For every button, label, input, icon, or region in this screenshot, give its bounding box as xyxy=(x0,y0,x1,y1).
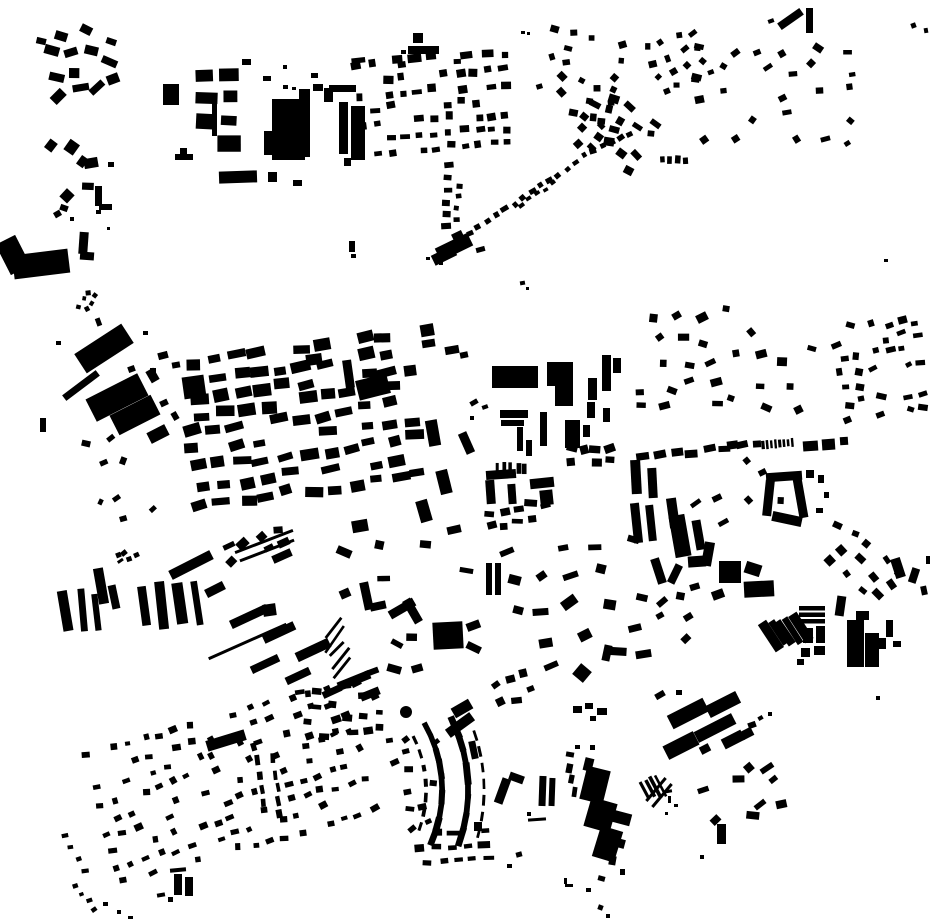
building-footprint xyxy=(778,94,788,103)
building-footprint xyxy=(210,455,225,468)
building-footprint xyxy=(590,745,595,750)
building-footprint xyxy=(270,753,275,763)
building-footprint xyxy=(691,519,705,550)
building-footprint xyxy=(264,131,274,155)
building-footprint xyxy=(424,793,428,803)
building-footprint xyxy=(610,73,620,83)
building-footprint xyxy=(174,874,182,895)
building-footprint xyxy=(340,764,348,770)
building-footprint xyxy=(59,188,74,203)
building-footprint xyxy=(108,584,121,609)
building-footprint xyxy=(235,385,253,398)
building-footprint xyxy=(95,317,102,326)
building-footprint xyxy=(650,557,667,585)
building-footprint xyxy=(446,111,453,119)
building-footprint xyxy=(731,134,741,144)
building-footprint xyxy=(63,139,80,156)
building-footprint xyxy=(344,158,351,166)
building-footprint xyxy=(390,758,400,767)
building-footprint xyxy=(430,132,438,137)
building-footprint xyxy=(444,102,452,109)
building-footprint xyxy=(426,53,437,60)
building-footprint xyxy=(249,718,257,725)
building-footprint xyxy=(816,508,823,513)
building-footprint xyxy=(119,515,127,522)
building-footprint xyxy=(568,774,575,784)
building-footprint xyxy=(235,367,251,379)
building-footprint xyxy=(512,519,523,524)
building-footprint xyxy=(201,790,210,797)
building-footprint xyxy=(484,511,494,517)
building-footprint xyxy=(816,626,825,643)
building-footprint xyxy=(898,346,905,352)
building-footprint xyxy=(806,470,814,478)
building-footprint xyxy=(528,817,546,821)
building-footprint xyxy=(143,733,150,740)
building-footprint xyxy=(245,346,266,360)
building-footprint xyxy=(680,633,691,644)
building-footprint xyxy=(305,690,311,697)
building-footprint xyxy=(306,758,312,763)
building-footprint xyxy=(376,710,383,715)
building-footprint xyxy=(279,483,293,496)
building-footprint xyxy=(273,770,278,780)
building-footprint xyxy=(426,257,430,260)
building-footprint xyxy=(251,457,269,468)
building-footprint xyxy=(170,867,186,872)
building-footprint xyxy=(363,726,373,735)
building-footprint xyxy=(171,849,180,856)
building-footprint xyxy=(99,204,112,210)
building-footprint xyxy=(532,608,548,616)
building-footprint xyxy=(457,97,464,104)
building-footprint xyxy=(127,365,136,373)
building-footprint xyxy=(287,794,295,802)
building-footprint xyxy=(623,100,636,112)
building-footprint xyxy=(513,505,524,512)
building-footprint xyxy=(338,387,356,398)
building-footprint xyxy=(273,377,289,389)
building-footprint xyxy=(903,394,913,400)
building-footprint xyxy=(852,352,859,360)
building-footprint xyxy=(494,777,511,805)
building-footprint xyxy=(328,701,337,709)
building-footprint xyxy=(548,53,555,61)
building-footprint xyxy=(152,836,158,843)
building-footprint xyxy=(420,540,432,548)
building-footprint xyxy=(283,85,288,89)
building-footprint xyxy=(704,358,716,367)
building-footprint xyxy=(325,617,343,639)
building-footprint xyxy=(222,541,235,551)
building-footprint xyxy=(885,346,896,354)
building-footprint xyxy=(803,440,819,451)
building-footprint xyxy=(565,884,573,887)
building-footprint xyxy=(188,842,197,849)
building-footprint xyxy=(468,856,476,861)
building-footprint xyxy=(406,633,417,641)
building-footprint xyxy=(654,73,662,81)
building-footprint xyxy=(253,439,266,447)
building-footprint xyxy=(473,223,481,231)
building-footprint xyxy=(69,68,79,78)
building-footprint xyxy=(564,45,573,52)
building-footprint xyxy=(349,730,358,736)
building-footprint xyxy=(209,373,227,383)
building-footprint xyxy=(221,115,237,125)
building-footprint xyxy=(61,833,68,838)
building-footprint xyxy=(649,118,661,129)
building-footprint xyxy=(377,576,390,582)
building-footprint xyxy=(405,429,424,440)
building-footprint xyxy=(423,860,432,866)
building-footprint xyxy=(63,47,78,59)
building-footprint xyxy=(564,878,567,884)
building-footprint xyxy=(446,524,461,535)
building-footprint xyxy=(417,749,423,759)
building-footprint xyxy=(560,594,579,611)
building-footprint xyxy=(154,581,169,630)
building-footprint xyxy=(376,724,384,731)
building-footprint xyxy=(799,613,825,618)
building-footprint xyxy=(251,788,258,796)
building-footprint xyxy=(275,783,280,792)
building-footprint xyxy=(558,544,569,552)
building-footprint xyxy=(439,262,443,265)
building-footprint xyxy=(712,401,723,407)
building-footprint xyxy=(507,484,516,505)
building-footprint xyxy=(245,755,253,763)
building-footprint xyxy=(615,147,627,159)
building-footprint xyxy=(403,789,411,796)
building-footprint xyxy=(150,770,156,776)
building-footprint xyxy=(754,799,767,811)
building-footprint xyxy=(684,450,697,459)
building-footprint xyxy=(81,868,89,873)
building-footprint xyxy=(854,553,866,565)
building-footprint xyxy=(355,743,364,752)
building-footprint xyxy=(726,440,738,449)
building-footprint xyxy=(101,55,119,68)
building-footprint xyxy=(497,64,508,71)
building-footprint xyxy=(748,115,757,124)
building-footprint xyxy=(249,366,269,378)
building-footprint xyxy=(886,578,897,590)
building-footprint xyxy=(613,358,621,373)
building-footprint xyxy=(491,680,501,689)
building-footprint xyxy=(537,181,544,188)
building-footprint xyxy=(876,392,887,400)
building-footprint xyxy=(417,822,423,831)
building-footprint xyxy=(421,339,435,349)
building-footprint xyxy=(915,360,925,366)
building-footprint xyxy=(36,37,47,45)
building-footprint xyxy=(616,133,625,142)
building-footprint xyxy=(630,460,642,494)
building-footprint xyxy=(336,748,344,755)
building-footprint xyxy=(305,487,323,497)
building-footprint xyxy=(562,570,579,581)
building-footprint xyxy=(356,107,364,114)
building-footprint xyxy=(82,182,94,190)
building-footprint xyxy=(856,611,869,620)
building-footprint xyxy=(311,73,318,78)
building-footprint xyxy=(329,85,356,92)
building-footprint xyxy=(762,480,775,517)
building-footprint xyxy=(481,404,488,410)
building-footprint xyxy=(409,468,424,477)
building-footprint xyxy=(842,384,849,389)
building-footprint xyxy=(112,494,121,503)
building-footprint xyxy=(668,796,671,803)
building-footprint xyxy=(462,143,470,149)
building-footprint xyxy=(362,776,369,781)
building-footprint xyxy=(235,791,244,800)
building-footprint xyxy=(484,217,492,225)
building-footprint xyxy=(141,855,150,862)
building-footprint xyxy=(577,628,593,643)
building-footprint xyxy=(349,241,355,252)
building-footprint xyxy=(732,349,740,357)
building-footprint xyxy=(683,612,694,622)
building-footprint xyxy=(264,714,274,723)
building-footprint xyxy=(538,776,546,806)
building-footprint xyxy=(464,843,473,848)
building-footprint xyxy=(325,447,340,460)
building-footprint xyxy=(799,619,825,624)
building-footprint xyxy=(505,674,516,683)
building-footprint xyxy=(96,210,101,214)
building-footprint xyxy=(341,815,348,821)
building-footprint xyxy=(648,60,658,69)
building-footprint xyxy=(300,447,320,461)
building-footprint xyxy=(458,431,475,455)
building-footprint xyxy=(755,349,768,359)
building-footprint xyxy=(543,187,549,192)
building-footprint xyxy=(195,856,201,862)
building-footprint xyxy=(676,592,685,601)
building-footprint xyxy=(119,877,127,884)
building-footprint xyxy=(590,716,596,721)
building-footprint xyxy=(230,828,239,835)
building-footprint xyxy=(72,83,89,93)
building-footprint xyxy=(415,132,422,138)
building-footprint xyxy=(122,777,131,784)
building-footprint xyxy=(227,348,246,360)
building-footprint xyxy=(102,831,110,838)
building-footprint xyxy=(374,540,384,550)
building-footprint xyxy=(610,647,627,656)
building-footprint xyxy=(277,452,293,463)
building-footprint xyxy=(43,44,60,57)
building-footprint xyxy=(262,700,270,707)
building-footprint xyxy=(581,152,587,159)
building-footprint xyxy=(777,357,787,366)
building-footprint xyxy=(588,378,597,400)
building-footprint xyxy=(768,712,772,716)
building-footprint xyxy=(705,691,741,718)
building-footprint xyxy=(368,59,376,68)
building-footprint xyxy=(256,492,274,503)
building-footprint xyxy=(527,32,530,35)
building-footprint xyxy=(711,588,725,601)
building-footprint xyxy=(105,37,117,46)
building-footprint xyxy=(699,135,709,145)
building-footprint xyxy=(549,778,556,806)
building-footprint xyxy=(447,831,460,836)
building-footprint xyxy=(605,456,614,463)
building-footprint xyxy=(570,29,577,35)
building-footprint xyxy=(472,100,480,108)
building-footprint xyxy=(439,69,448,77)
building-footprint xyxy=(603,599,617,611)
building-footprint xyxy=(421,147,428,153)
building-footprint xyxy=(896,329,906,337)
building-footprint xyxy=(211,497,230,506)
building-footprint xyxy=(770,440,773,448)
building-footprint xyxy=(480,812,484,822)
building-footprint xyxy=(454,205,460,210)
building-footprint xyxy=(465,641,482,654)
building-footprint xyxy=(86,898,93,904)
building-footprint xyxy=(459,351,468,359)
building-footprint xyxy=(84,45,99,57)
building-footprint xyxy=(195,70,213,82)
building-footprint xyxy=(425,419,441,447)
building-footprint xyxy=(846,116,855,125)
building-footprint xyxy=(615,116,625,126)
building-footprint xyxy=(293,813,299,819)
building-footprint xyxy=(390,638,403,649)
building-footprint xyxy=(507,864,512,868)
building-footprint xyxy=(589,35,595,40)
building-footprint xyxy=(48,72,65,83)
building-footprint xyxy=(299,829,307,836)
building-footprint xyxy=(257,771,263,780)
building-footprint xyxy=(482,795,486,806)
building-footprint xyxy=(645,505,657,542)
building-footprint xyxy=(190,498,207,512)
building-footprint xyxy=(477,841,490,848)
building-footprint xyxy=(412,89,423,95)
building-footprint xyxy=(536,83,543,90)
building-footprint xyxy=(50,88,67,105)
building-footprint xyxy=(265,837,274,845)
building-footprint xyxy=(427,83,436,92)
building-footprint xyxy=(362,422,374,430)
building-footprint xyxy=(182,375,207,400)
building-footprint xyxy=(319,426,338,436)
building-footprint xyxy=(351,519,369,534)
building-footprint xyxy=(690,498,702,508)
building-footprint xyxy=(357,122,367,130)
building-footprint xyxy=(653,449,666,459)
building-footprint xyxy=(430,115,438,122)
building-footprint xyxy=(550,24,560,33)
building-footprint xyxy=(76,856,82,862)
building-footprint xyxy=(526,440,532,456)
building-footprint xyxy=(654,690,666,700)
building-footprint xyxy=(699,743,712,755)
building-footprint xyxy=(312,688,322,695)
building-footprint xyxy=(618,40,628,49)
building-footprint xyxy=(374,120,381,126)
building-footprint xyxy=(262,401,278,414)
building-footprint xyxy=(474,822,482,831)
building-footprint xyxy=(564,166,571,173)
building-footprint xyxy=(908,567,920,584)
building-footprint xyxy=(885,322,894,330)
building-footprint xyxy=(664,54,671,63)
building-footprint xyxy=(127,861,134,868)
building-footprint xyxy=(476,126,486,133)
building-footprint xyxy=(456,184,462,189)
building-footprint xyxy=(441,223,451,230)
building-footprint xyxy=(444,162,454,169)
building-footprint xyxy=(315,786,323,793)
building-footprint xyxy=(771,511,802,527)
building-footprint xyxy=(495,563,501,595)
building-footprint xyxy=(601,644,612,661)
building-footprint xyxy=(592,458,602,466)
building-footprint xyxy=(920,585,928,595)
building-footprint xyxy=(212,100,217,136)
building-footprint xyxy=(79,23,93,36)
building-footprint xyxy=(303,791,312,799)
building-footprint xyxy=(303,718,311,725)
building-footprint xyxy=(575,745,580,749)
building-footprint xyxy=(168,550,214,580)
building-footprint xyxy=(402,748,410,755)
building-footprint xyxy=(538,638,553,649)
building-footprint xyxy=(508,772,525,785)
building-footprint xyxy=(758,468,768,477)
building-footprint xyxy=(543,660,559,671)
building-footprint xyxy=(433,829,442,836)
building-footprint xyxy=(387,454,405,468)
building-footprint xyxy=(858,586,867,595)
building-footprint xyxy=(565,763,573,774)
building-footprint xyxy=(911,321,918,327)
building-footprint xyxy=(518,194,526,202)
building-footprint xyxy=(205,729,246,751)
building-footprint xyxy=(355,373,391,400)
building-footprint xyxy=(595,563,607,574)
building-footprint xyxy=(656,38,664,46)
building-footprint xyxy=(926,556,930,564)
building-footprint xyxy=(685,362,695,370)
building-footprint xyxy=(840,437,849,446)
building-footprint xyxy=(414,115,424,122)
building-footprint xyxy=(54,30,69,42)
building-footprint xyxy=(107,227,110,230)
building-footprint xyxy=(879,638,886,649)
building-footprint xyxy=(500,507,511,516)
building-footprint xyxy=(660,156,665,162)
building-footprint xyxy=(253,843,259,848)
building-footprint xyxy=(113,865,120,872)
building-footprint xyxy=(568,109,578,117)
building-footprint xyxy=(110,743,117,750)
building-footprint xyxy=(155,733,163,740)
building-footprint xyxy=(370,108,380,113)
building-footprint xyxy=(620,869,625,875)
building-footprint xyxy=(566,751,575,757)
building-footprint xyxy=(493,211,500,218)
building-footprint xyxy=(403,365,416,377)
building-footprint xyxy=(820,135,831,142)
building-footprint xyxy=(663,87,671,95)
